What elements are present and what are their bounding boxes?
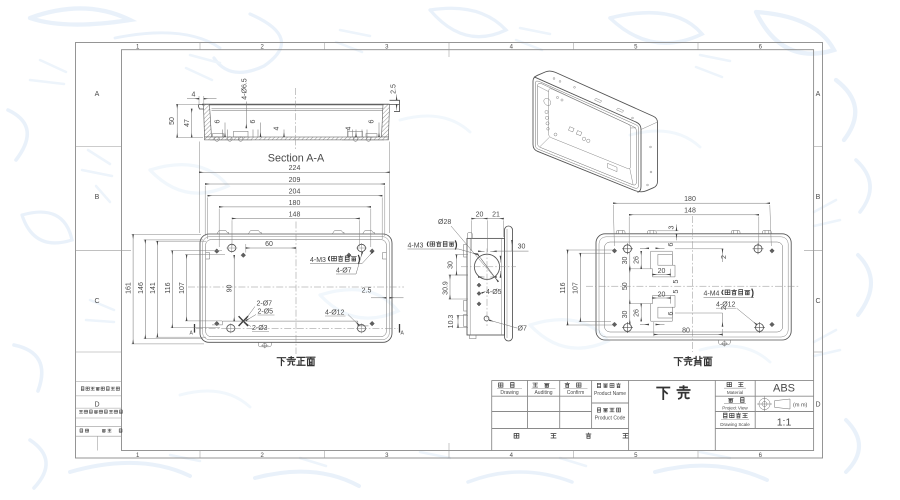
svg-text:Auditing: Auditing [534, 390, 552, 396]
svg-text:30: 30 [448, 261, 455, 269]
svg-text:21: 21 [492, 211, 500, 218]
svg-text:6: 6 [369, 119, 376, 123]
svg-text:4-M3: 4-M3 [408, 243, 424, 250]
svg-text:20: 20 [658, 292, 666, 299]
svg-text:Drawing Scale: Drawing Scale [720, 422, 750, 427]
svg-text:(m m): (m m) [793, 403, 808, 409]
svg-text:50: 50 [622, 282, 629, 290]
svg-text:2-Ø3: 2-Ø3 [252, 325, 268, 332]
svg-text:148: 148 [684, 208, 696, 215]
svg-text:C: C [815, 298, 820, 305]
svg-text:Material: Material [727, 390, 743, 395]
svg-text:60: 60 [265, 241, 273, 248]
svg-text:D: D [94, 402, 99, 409]
svg-text:4-Ø12: 4-Ø12 [716, 302, 736, 309]
svg-text:ABS: ABS [773, 383, 795, 395]
svg-text:107: 107 [573, 282, 580, 294]
svg-text:26: 26 [634, 309, 641, 317]
svg-text:4: 4 [274, 126, 281, 130]
svg-text:Project View: Project View [722, 406, 748, 411]
svg-text:47: 47 [184, 119, 191, 127]
svg-text:Product Code: Product Code [595, 416, 626, 422]
svg-text:Drawing: Drawing [500, 390, 519, 396]
svg-text:6: 6 [668, 311, 675, 315]
svg-text:30: 30 [518, 244, 526, 251]
svg-text:4-Ø12: 4-Ø12 [325, 310, 345, 317]
svg-text:4-M4: 4-M4 [704, 291, 720, 298]
svg-text:30: 30 [622, 311, 629, 319]
svg-text:50: 50 [169, 117, 176, 125]
svg-text:2.5: 2.5 [390, 84, 397, 94]
svg-text:2-Ø7: 2-Ø7 [257, 301, 273, 308]
svg-text:D: D [815, 402, 820, 409]
svg-text:30.9: 30.9 [442, 281, 449, 295]
svg-text:4: 4 [192, 92, 196, 99]
svg-text:Confirm: Confirm [567, 390, 585, 396]
svg-text:C: C [94, 298, 99, 305]
svg-text:A: A [95, 91, 100, 98]
svg-text:4-Ø7: 4-Ø7 [336, 268, 352, 275]
svg-text:80: 80 [682, 328, 690, 335]
svg-text:1:1: 1:1 [777, 417, 792, 429]
svg-text:141: 141 [150, 282, 157, 294]
svg-text:224: 224 [289, 165, 301, 172]
svg-text:180: 180 [684, 196, 696, 203]
svg-text:4: 4 [346, 126, 353, 130]
svg-text:2-Ø5: 2-Ø5 [258, 309, 274, 316]
svg-text:3: 3 [669, 225, 676, 229]
svg-text:Product Name: Product Name [594, 391, 626, 397]
svg-text:116: 116 [560, 282, 567, 293]
svg-text:4-Ø5: 4-Ø5 [486, 289, 502, 296]
svg-text:6: 6 [668, 242, 675, 246]
svg-text:B: B [816, 194, 821, 201]
svg-text:5: 5 [673, 289, 680, 293]
svg-text:Ø28: Ø28 [438, 219, 451, 226]
svg-text:2.5: 2.5 [362, 287, 372, 294]
svg-text:116: 116 [165, 282, 172, 293]
svg-text:204: 204 [289, 189, 301, 196]
svg-text:Section A-A: Section A-A [268, 153, 325, 165]
svg-text:90: 90 [227, 285, 234, 293]
svg-text:2: 2 [721, 255, 728, 259]
svg-text:26: 26 [634, 256, 641, 264]
svg-text:4-Ø6.5: 4-Ø6.5 [241, 78, 248, 100]
svg-text:Ø7: Ø7 [518, 326, 527, 333]
svg-text:107: 107 [179, 282, 186, 294]
svg-text:10.3: 10.3 [448, 315, 455, 329]
svg-text:4-M3: 4-M3 [310, 257, 326, 264]
svg-text:20: 20 [476, 211, 484, 218]
svg-text:6: 6 [250, 119, 257, 123]
svg-text:B: B [95, 194, 100, 201]
svg-text:30: 30 [622, 257, 629, 265]
svg-text:20: 20 [658, 268, 666, 275]
svg-text:6: 6 [215, 119, 222, 123]
svg-text:209: 209 [289, 177, 301, 184]
svg-text:A: A [816, 91, 821, 98]
svg-text:146: 146 [138, 282, 145, 294]
svg-text:5: 5 [673, 279, 680, 283]
svg-text:161: 161 [126, 282, 133, 294]
svg-text:180: 180 [289, 200, 301, 207]
svg-text:148: 148 [289, 211, 301, 218]
